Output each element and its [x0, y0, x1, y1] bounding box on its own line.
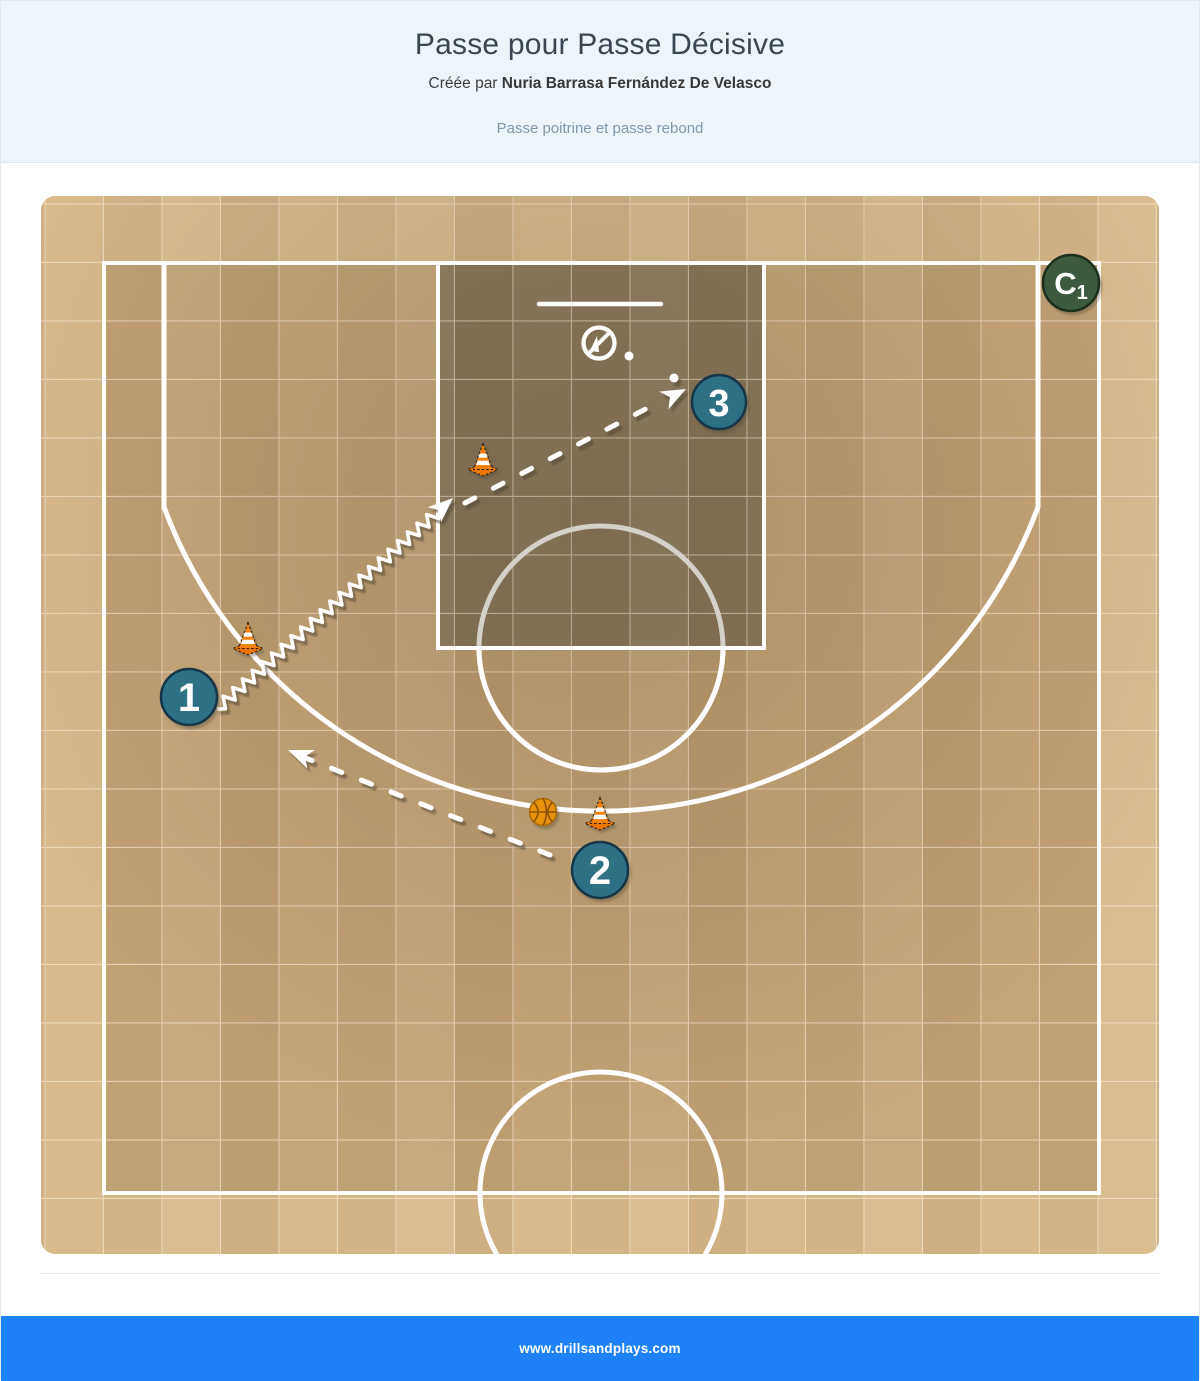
player-3-label: 3	[708, 383, 729, 425]
byline-prefix: Créée par	[429, 75, 502, 92]
player-1-label: 1	[178, 676, 200, 720]
header: Passe pour Passe Décisive Créée par Nuri…	[1, 1, 1199, 163]
player-2-marker: 2	[572, 842, 628, 898]
court-diagram: 1 2 3 C1	[41, 196, 1159, 1254]
byline-author: Nuria Barrasa Fernández De Velasco	[502, 75, 772, 92]
hoop-dot	[625, 352, 634, 361]
footer: www.drillsandplays.com	[1, 1316, 1199, 1381]
floor-shading	[41, 196, 1159, 1254]
player-1-marker: 1	[161, 669, 217, 725]
basketball-icon	[530, 799, 557, 826]
court-svg: 1 2 3 C1	[41, 196, 1159, 1254]
footer-website-link[interactable]: www.drillsandplays.com	[519, 1316, 680, 1381]
coach-marker: C1	[1043, 255, 1099, 311]
divider	[41, 1273, 1159, 1274]
page-title: Passe pour Passe Décisive	[1, 1, 1199, 62]
pass-end-dot	[670, 374, 679, 383]
byline: Créée par Nuria Barrasa Fernández De Vel…	[1, 75, 1199, 93]
player-2-label: 2	[589, 849, 611, 893]
player-3-marker: 3	[692, 375, 746, 429]
drill-page: Passe pour Passe Décisive Créée par Nuri…	[0, 0, 1200, 1380]
drill-description: Passe poitrine et passe rebond	[1, 120, 1199, 137]
